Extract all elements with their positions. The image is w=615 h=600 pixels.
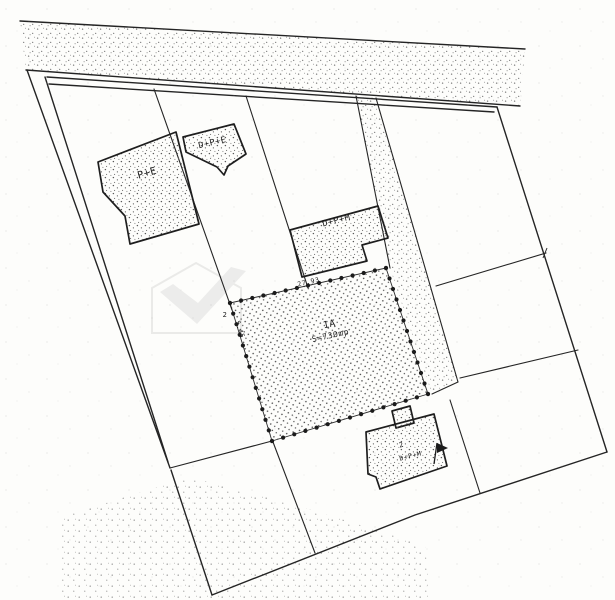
fence-post xyxy=(405,329,409,333)
fence-post xyxy=(239,298,243,302)
fence-post xyxy=(315,426,319,430)
fence-post xyxy=(303,429,307,433)
fence-post xyxy=(247,365,251,369)
fence-post xyxy=(284,288,288,292)
fence-post xyxy=(260,407,264,411)
fence-post xyxy=(261,293,265,297)
fence-post xyxy=(244,354,248,358)
site-plan-canvas: P+E D+P+E D+P+M 1A S=730mp 27.93 2 5.45 … xyxy=(0,0,615,600)
fence-post xyxy=(370,409,374,413)
fence-post xyxy=(401,318,405,322)
fence-post xyxy=(384,266,388,270)
fence-post xyxy=(373,268,377,272)
fence-post xyxy=(415,360,419,364)
fence-post xyxy=(228,301,232,305)
fence-post xyxy=(415,395,419,399)
fence-post xyxy=(292,432,296,436)
fence-post xyxy=(257,396,261,400)
fence-post xyxy=(328,278,332,282)
fence-post xyxy=(251,375,255,379)
fence-post xyxy=(270,439,274,443)
fence-post xyxy=(419,371,423,375)
fence-post xyxy=(404,399,408,403)
fence-post xyxy=(339,276,343,280)
fence-post xyxy=(408,339,412,343)
fence-post xyxy=(254,386,258,390)
fence-post xyxy=(241,343,245,347)
fence-post xyxy=(273,291,277,295)
fence-post xyxy=(267,428,271,432)
fence-post xyxy=(387,276,391,280)
fence-post xyxy=(393,402,397,406)
fence-post xyxy=(348,415,352,419)
fence-post xyxy=(422,381,426,385)
fence-post xyxy=(426,392,430,396)
fence-post xyxy=(250,296,254,300)
corner-point-label: 2 xyxy=(223,311,228,319)
fence-post xyxy=(326,422,330,426)
fence-post xyxy=(398,308,402,312)
fence-post xyxy=(351,273,355,277)
fence-post xyxy=(391,287,395,291)
cadastral-plan-drawing: P+E D+P+E D+P+M 1A S=730mp 27.93 2 5.45 … xyxy=(0,0,615,600)
fence-post xyxy=(337,419,341,423)
fence-post xyxy=(359,412,363,416)
fence-post xyxy=(231,312,235,316)
fence-post xyxy=(362,271,366,275)
fence-post xyxy=(281,436,285,440)
fence-post xyxy=(381,405,385,409)
fence-post xyxy=(412,350,416,354)
fence-post xyxy=(263,418,267,422)
fence-post xyxy=(394,297,398,301)
